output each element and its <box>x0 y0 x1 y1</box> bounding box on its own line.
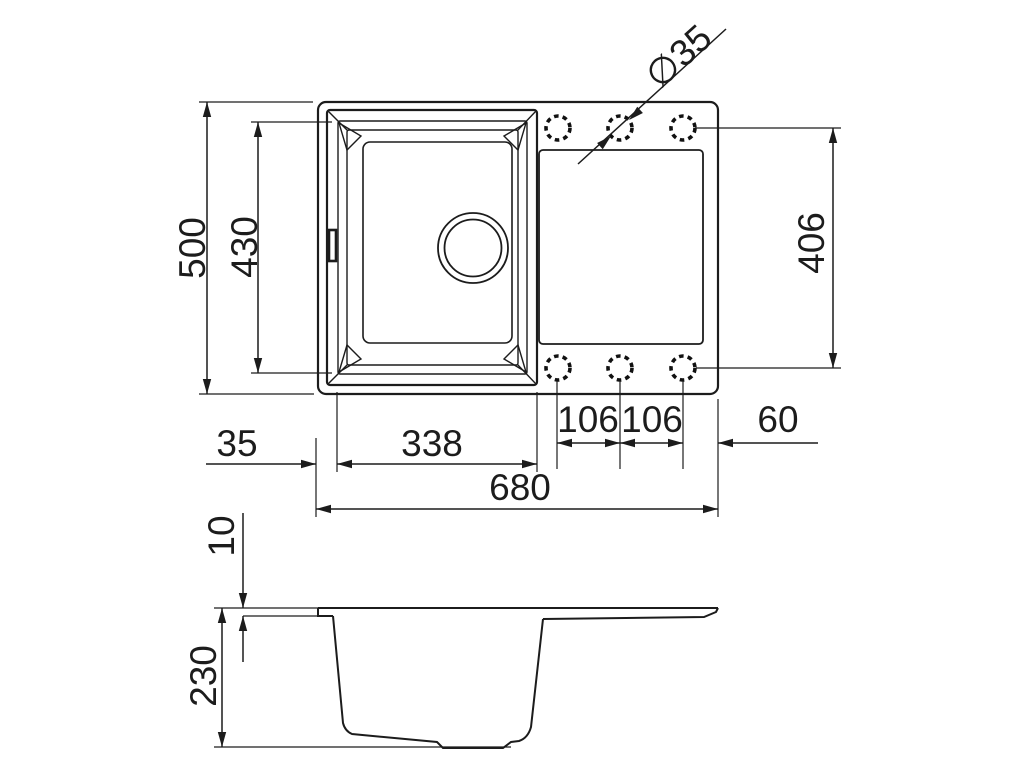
dim-35-label: 35 <box>216 423 257 464</box>
tap-hole-bottom-middle <box>608 356 632 380</box>
overflow-slot <box>329 230 336 261</box>
dim-430: 430 <box>224 122 332 373</box>
dim-hole-diameter: ∅35 <box>578 17 726 164</box>
tap-hole-top-left <box>546 116 570 140</box>
drain-circles <box>438 213 508 283</box>
dim-338: 338 <box>337 392 537 472</box>
sink-technical-drawing: ∅35 500 430 406 <box>0 0 1024 768</box>
bowl <box>327 110 537 385</box>
dim-60: 60 <box>718 399 818 517</box>
dim-430-label: 430 <box>224 216 265 278</box>
dim-hole-diameter-label: ∅35 <box>638 17 720 97</box>
dim-35: 35 <box>206 423 316 517</box>
tap-hole-top-right <box>671 116 695 140</box>
tap-hole-top-middle <box>608 116 632 140</box>
dim-230-label: 230 <box>183 645 224 707</box>
dim-106b-label: 106 <box>621 399 683 440</box>
drawing-canvas: ∅35 500 430 406 <box>0 0 1024 768</box>
side-view: 10 230 <box>183 513 718 748</box>
dim-10-label: 10 <box>201 515 242 556</box>
dim-680: 680 <box>316 467 718 513</box>
drainboard <box>539 150 703 344</box>
dim-500-label: 500 <box>172 217 213 279</box>
side-profile <box>318 608 718 748</box>
dim-60-label: 60 <box>757 399 798 440</box>
dim-406-label: 406 <box>791 212 832 274</box>
tap-hole-bottom-right <box>671 356 695 380</box>
dim-106a-label: 106 <box>557 399 619 440</box>
dim-230: 230 <box>183 608 511 747</box>
tap-hole-markers <box>546 116 695 380</box>
dim-10: 10 <box>201 513 318 662</box>
dim-680-label: 680 <box>489 467 551 508</box>
bowl-bottom <box>363 142 512 343</box>
dim-338-label: 338 <box>401 423 463 464</box>
tap-hole-bottom-left <box>546 356 570 380</box>
top-view: ∅35 500 430 406 <box>172 17 841 517</box>
